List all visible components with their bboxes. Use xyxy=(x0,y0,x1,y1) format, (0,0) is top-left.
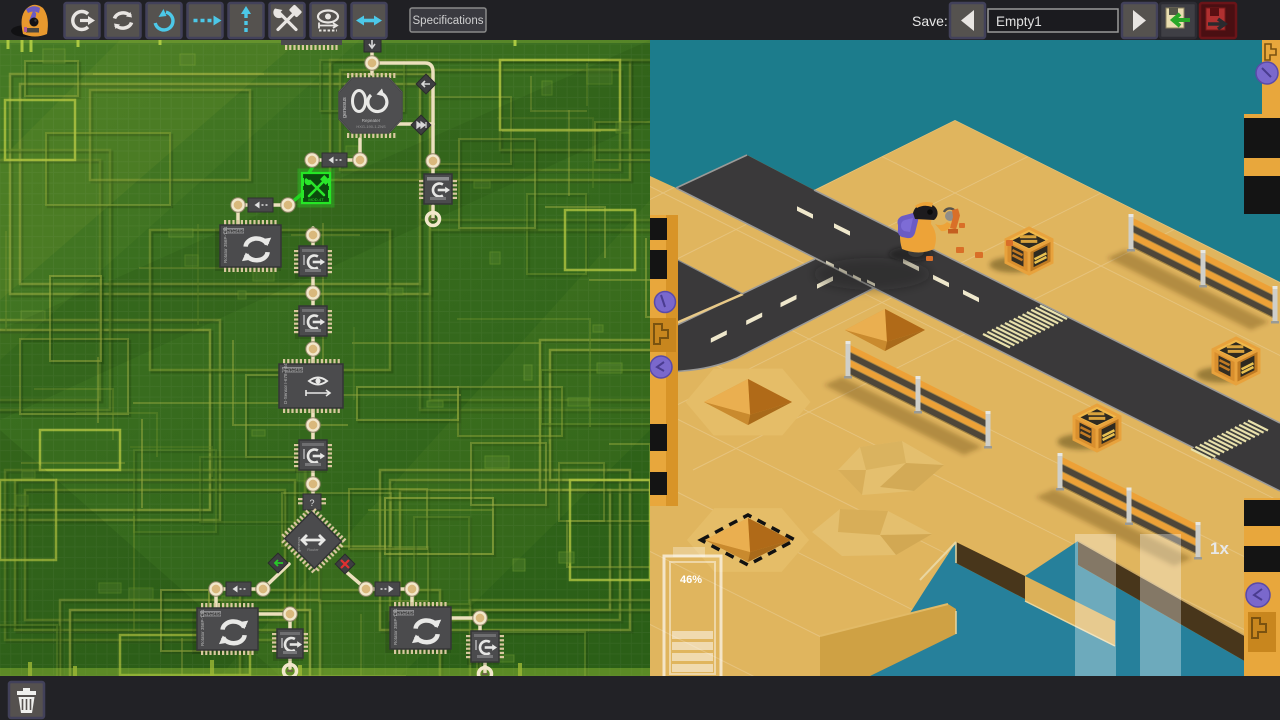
svg-text:genesus: genesus xyxy=(296,537,301,552)
svg-text:1x: 1x xyxy=(1210,539,1229,558)
svg-text:Rotator 356P-T.91: Rotator 356P-T.91 xyxy=(393,608,398,645)
svg-text:D-Sensor I-678-7.04: D-Sensor I-678-7.04 xyxy=(283,363,288,404)
svg-text:Rotator 356P-T.91: Rotator 356P-T.91 xyxy=(223,226,228,263)
svg-text:MOD-4T: MOD-4T xyxy=(308,197,324,202)
svg-text:HXG-190-1.ZNS: HXG-190-1.ZNS xyxy=(356,124,386,129)
svg-text:Rotator 356P-T.91: Rotator 356P-T.91 xyxy=(200,609,205,646)
svg-text:genesus: genesus xyxy=(342,97,348,118)
svg-text:Empty1: Empty1 xyxy=(996,14,1042,29)
svg-text:?: ? xyxy=(309,498,314,508)
svg-text:Router: Router xyxy=(307,548,319,552)
svg-text:Save:: Save: xyxy=(912,13,948,29)
svg-text:Specifications: Specifications xyxy=(413,15,484,27)
svg-text:Repeater: Repeater xyxy=(362,118,381,123)
svg-text:46%: 46% xyxy=(680,574,702,586)
